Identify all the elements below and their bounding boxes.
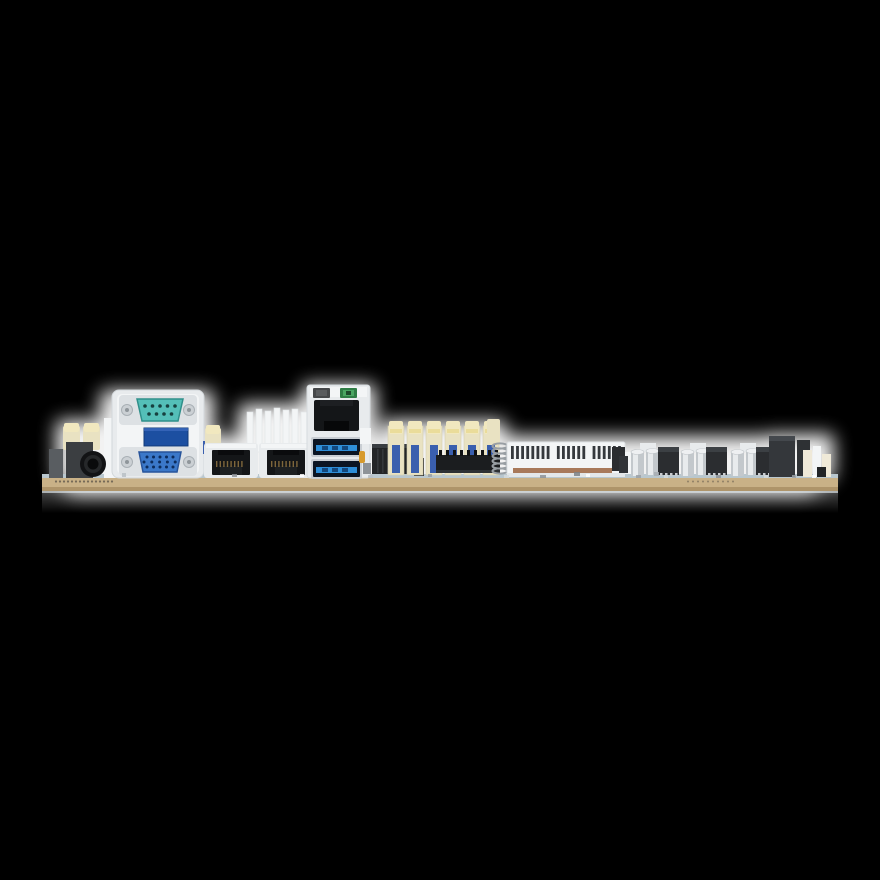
lan-led-right (340, 388, 357, 398)
solder-dot (55, 480, 57, 482)
vga-hole (146, 456, 149, 459)
slot-slit (526, 446, 529, 459)
solder-dot (95, 480, 97, 482)
solder-dot (107, 480, 109, 482)
choke-pin (675, 473, 678, 476)
lan-pin (293, 461, 294, 467)
capacitor-highlight (683, 452, 688, 476)
rib (382, 449, 384, 473)
smd-part (540, 475, 546, 478)
serial-port-db9 (119, 395, 197, 425)
solder-dot (697, 481, 699, 483)
lan-pin (220, 461, 221, 467)
vga-hole (174, 461, 177, 464)
lan-pin (278, 461, 279, 467)
choke-pin (670, 473, 673, 476)
smd-part (664, 475, 668, 478)
lan-housing-top (206, 444, 256, 448)
gray-slab (49, 449, 63, 478)
serial-pin (158, 404, 162, 408)
vga-hole (166, 461, 169, 464)
lan-pin (234, 461, 235, 467)
capacitor-highlight (733, 452, 738, 476)
usb3-port-1 (311, 437, 362, 457)
capacitor-top (646, 449, 659, 454)
solder-dot (71, 480, 73, 482)
lan-pin (223, 461, 224, 467)
latch-cap-band (466, 429, 478, 433)
lan-pin (216, 461, 217, 467)
vga-hole (159, 456, 162, 459)
serial-pin (143, 404, 147, 408)
capacitor-highlight (633, 452, 638, 476)
serial-pin (151, 404, 155, 408)
slot-slit (572, 446, 575, 459)
solder-dot (79, 480, 81, 482)
smd-part (636, 475, 641, 478)
white-connector (803, 450, 812, 477)
latch-blue-stripe (392, 445, 400, 473)
smd-part (574, 472, 580, 476)
solder-dot (707, 481, 709, 483)
capacitor-highlight (698, 451, 703, 475)
serial-pin (147, 412, 151, 416)
small-chip (619, 456, 628, 473)
latch-cap-band (390, 429, 402, 433)
lan-tab (273, 450, 299, 455)
io-chip (769, 436, 795, 477)
slot-slit (511, 446, 514, 459)
lan-pin (230, 461, 231, 467)
slot-slit (577, 446, 580, 459)
vga-hole (150, 461, 153, 464)
smd-part (812, 475, 816, 478)
slot-slit (537, 446, 540, 459)
lan-pin (241, 461, 242, 467)
vga-port (119, 447, 197, 476)
smd-part (428, 474, 432, 477)
white-sliver (360, 428, 371, 444)
slot-slit (516, 446, 519, 459)
solder-dot (727, 481, 729, 483)
solder-dot (111, 480, 113, 482)
smd-part (300, 474, 304, 477)
choke-pin (660, 473, 663, 476)
header-pin (453, 450, 456, 456)
lan-pin (227, 461, 228, 467)
solder-dot (67, 480, 69, 482)
header-pin (481, 450, 484, 456)
smd-part (504, 475, 509, 478)
header-pin (460, 450, 463, 456)
smd-part (654, 472, 659, 476)
lan-clip (275, 466, 297, 475)
latch-blue-stripe (411, 445, 419, 473)
slot-slit (598, 446, 601, 459)
capacitor-top (631, 450, 644, 455)
slot-slit (593, 446, 596, 459)
slot-slit (547, 446, 550, 459)
solder-dot (717, 481, 719, 483)
solder-dot (103, 480, 105, 482)
serial-pin (170, 412, 174, 416)
audio-jack-barrel (80, 451, 106, 477)
vga-hole (172, 466, 175, 469)
serial-pin (166, 404, 170, 408)
vga-hole (152, 456, 155, 459)
vga-hole (165, 466, 168, 469)
smd-part (792, 475, 796, 478)
vga-hole (172, 456, 175, 459)
smd-part (764, 475, 768, 478)
tiny-chip (817, 467, 826, 477)
lan-pin (282, 461, 283, 467)
serial-pin (173, 404, 177, 408)
rib (377, 449, 379, 473)
slot-slit (608, 446, 611, 459)
lan-pin (275, 461, 276, 467)
slot-slit (557, 446, 560, 459)
serial-pin (155, 412, 159, 416)
ethernet-port-1 (204, 443, 258, 478)
ethernet-port-2 (259, 443, 313, 478)
copper-contact-strip (513, 468, 612, 473)
smd-part (122, 473, 126, 477)
choke-pin (723, 473, 726, 476)
solder-dot (75, 480, 77, 482)
smd-part (232, 474, 237, 477)
choke-top (706, 447, 727, 452)
header-pin (488, 450, 491, 456)
header-pin (467, 450, 470, 456)
usb-edge-slot (144, 428, 188, 446)
serial-vga-bracket (112, 390, 212, 478)
choke-pin (708, 473, 711, 476)
latch-cap-band (428, 429, 440, 433)
vga-hole (143, 461, 146, 464)
header-pin (446, 450, 449, 456)
capacitor-top (681, 450, 694, 455)
lan-pin (285, 461, 286, 467)
lan-pin (296, 461, 297, 467)
solder-dot (99, 480, 101, 482)
solder-dot (91, 480, 93, 482)
lan-pin (289, 461, 290, 467)
header-pin (439, 450, 442, 456)
header-pin (474, 450, 477, 456)
usb3-port-2 (311, 459, 362, 479)
lan-pin (238, 461, 239, 467)
slot-slit (542, 446, 545, 459)
solder-dot (87, 480, 89, 482)
slot-slit (531, 446, 534, 459)
slot-slit (582, 446, 585, 459)
vga-hole (159, 466, 162, 469)
lan-led-left (313, 388, 330, 398)
lan-clip (220, 466, 242, 475)
slot-slit (603, 446, 606, 459)
solder-dot (702, 481, 704, 483)
serial-pin (162, 412, 166, 416)
gigabit-lan-port (314, 400, 359, 431)
solder-dot (692, 481, 694, 483)
product-photo-motherboard (0, 0, 880, 880)
choke-pin (758, 473, 761, 476)
choke-top (658, 447, 679, 452)
gray-bit (363, 463, 371, 474)
slot-slit (567, 446, 570, 459)
vga-hole (165, 456, 168, 459)
lan-tab (218, 450, 244, 455)
smd-part (586, 474, 590, 477)
solder-dot (712, 481, 714, 483)
solder-dot (59, 480, 61, 482)
vga-hole (158, 461, 161, 464)
vga-hole (152, 466, 155, 469)
vga-hole (146, 466, 149, 469)
solder-dot (83, 480, 85, 482)
capacitor-highlight (648, 451, 653, 475)
solder-dot (687, 481, 689, 483)
choke-pin (713, 473, 716, 476)
latch-cap-band (447, 429, 459, 433)
board-reflection (42, 491, 838, 513)
capacitor-highlight (748, 451, 753, 475)
lan-pin (271, 461, 272, 467)
slot-edge-connector (507, 442, 633, 477)
lan-housing-top (261, 444, 311, 448)
solder-dot (722, 481, 724, 483)
smd-part (716, 475, 721, 478)
smd-part (368, 475, 373, 478)
vrm-row (619, 443, 777, 476)
slot-slit (521, 446, 524, 459)
amber-component (359, 451, 365, 463)
solder-dot (732, 481, 734, 483)
slot-slit (562, 446, 565, 459)
latch-cap-band (409, 429, 421, 433)
solder-dot (63, 480, 65, 482)
capacitor-top (731, 450, 744, 455)
